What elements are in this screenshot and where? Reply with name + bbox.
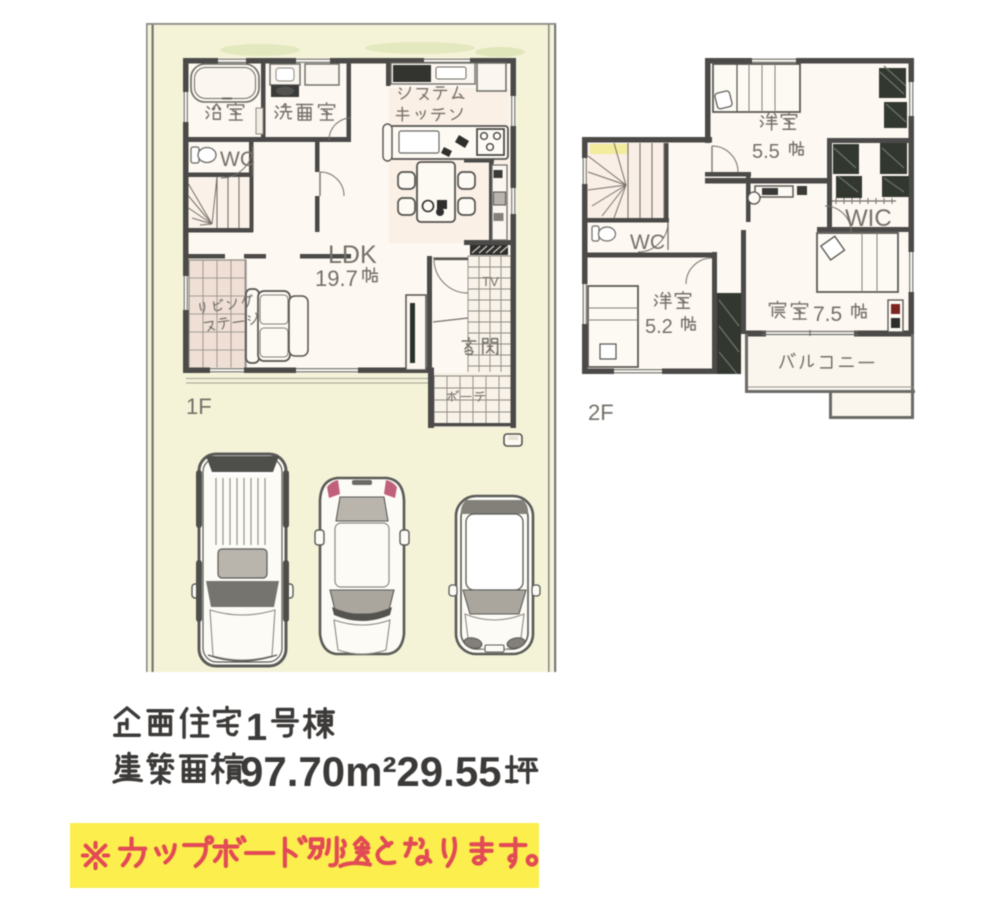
svg-text:WC: WC: [220, 148, 255, 171]
svg-text:1F: 1F: [186, 394, 212, 419]
svg-text:7.5: 7.5: [813, 303, 842, 326]
svg-text:LDK: LDK: [328, 241, 377, 269]
svg-text:97.70m²29.55: 97.70m²29.55: [240, 748, 502, 795]
svg-text:5.2: 5.2: [645, 316, 673, 338]
svg-text:TV: TV: [482, 274, 499, 289]
svg-text:2F: 2F: [588, 400, 614, 425]
svg-text:WIC: WIC: [845, 205, 892, 232]
svg-text:19.7: 19.7: [315, 266, 358, 291]
svg-text:WC: WC: [630, 231, 665, 254]
svg-text:1: 1: [246, 707, 267, 749]
svg-text:5.5: 5.5: [752, 141, 780, 163]
